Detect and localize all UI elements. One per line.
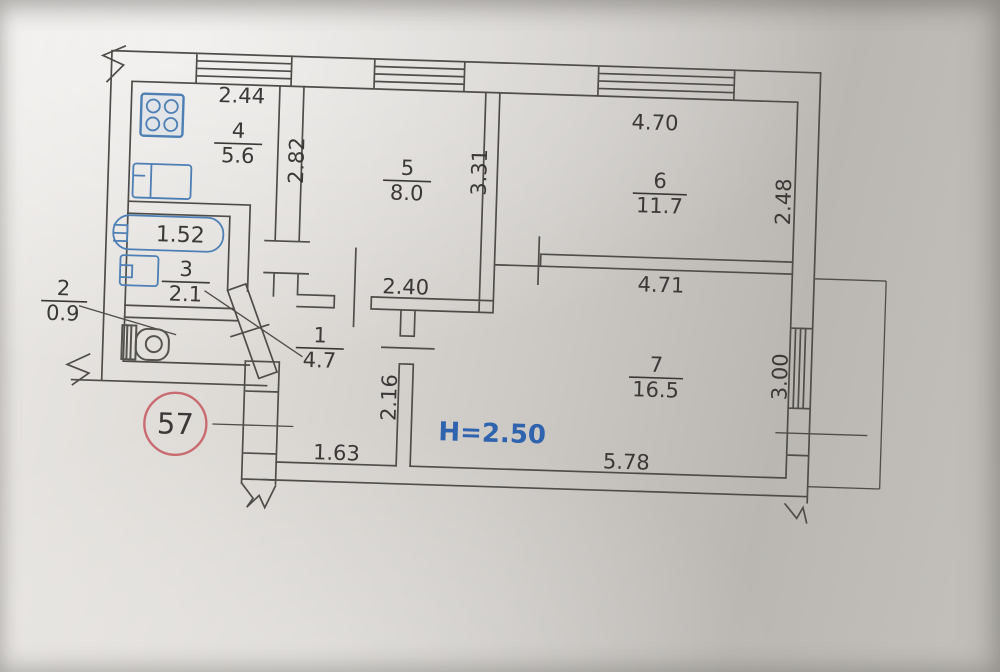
room-label-hallway: 1 4.7 bbox=[295, 323, 345, 373]
dim-room7-right-height: 3.00 bbox=[767, 353, 792, 400]
dim-room5-wall-height: 3.31 bbox=[467, 148, 492, 195]
dim-room6-right-height: 2.48 bbox=[771, 178, 796, 225]
room-label-room5: 5 8.0 bbox=[382, 155, 432, 205]
dim-hall-bottom-width: 1.63 bbox=[313, 440, 360, 465]
svg-text:4.7: 4.7 bbox=[302, 348, 336, 373]
apartment-number: 57 bbox=[156, 406, 194, 441]
balcony-outline bbox=[808, 279, 886, 489]
svg-text:8.0: 8.0 bbox=[390, 180, 424, 205]
dim-room6-top-width: 4.70 bbox=[631, 110, 678, 135]
ceiling-height-note: H=2.50 bbox=[438, 417, 547, 450]
apartment-number-stamp: 57 bbox=[143, 392, 207, 456]
svg-text:0.9: 0.9 bbox=[46, 301, 80, 326]
dim-kitchen-depth: 2.82 bbox=[284, 137, 309, 184]
svg-text:2.1: 2.1 bbox=[168, 282, 202, 307]
svg-text:5: 5 bbox=[400, 156, 414, 180]
room-label-room6: 6 11.7 bbox=[632, 168, 688, 219]
plan-group: 2.44 2.82 4.70 3.31 2.48 4.71 2.40 2.16 … bbox=[35, 44, 893, 527]
room-label-toilet: 2 0.9 bbox=[40, 276, 88, 326]
svg-text:11.7: 11.7 bbox=[636, 193, 683, 218]
svg-text:3: 3 bbox=[179, 257, 193, 281]
svg-text:2: 2 bbox=[56, 276, 70, 300]
floor-plan-svg: 2.44 2.82 4.70 3.31 2.48 4.71 2.40 2.16 … bbox=[0, 0, 1000, 672]
room-label-kitchen: 4 5.6 bbox=[213, 118, 263, 168]
dim-room5-bottom-width: 2.40 bbox=[382, 274, 429, 299]
dim-hall-wall-height: 2.16 bbox=[377, 374, 402, 421]
svg-text:16.5: 16.5 bbox=[632, 377, 679, 402]
kitchen-sink-icon bbox=[132, 163, 191, 199]
svg-text:5.6: 5.6 bbox=[221, 143, 255, 168]
dim-room6-bottom-width: 4.71 bbox=[637, 272, 684, 297]
entrance-wall-column bbox=[241, 361, 280, 508]
floorplan-photo: 2.44 2.82 4.70 3.31 2.48 4.71 2.40 2.16 … bbox=[0, 0, 1000, 672]
svg-text:1: 1 bbox=[313, 323, 327, 347]
dim-room7-bottom-width: 5.78 bbox=[603, 449, 650, 474]
dim-kitchen-width: 2.44 bbox=[218, 83, 265, 108]
svg-text:6: 6 bbox=[653, 169, 667, 193]
toilet-icon bbox=[121, 325, 169, 360]
room-label-bathroom: 3 2.1 bbox=[161, 256, 211, 306]
room-label-room7: 7 16.5 bbox=[628, 352, 684, 403]
stove-icon bbox=[140, 94, 183, 137]
bathtub-length-label: 1.52 bbox=[155, 222, 205, 249]
svg-text:4: 4 bbox=[232, 118, 246, 142]
svg-text:7: 7 bbox=[649, 353, 663, 377]
